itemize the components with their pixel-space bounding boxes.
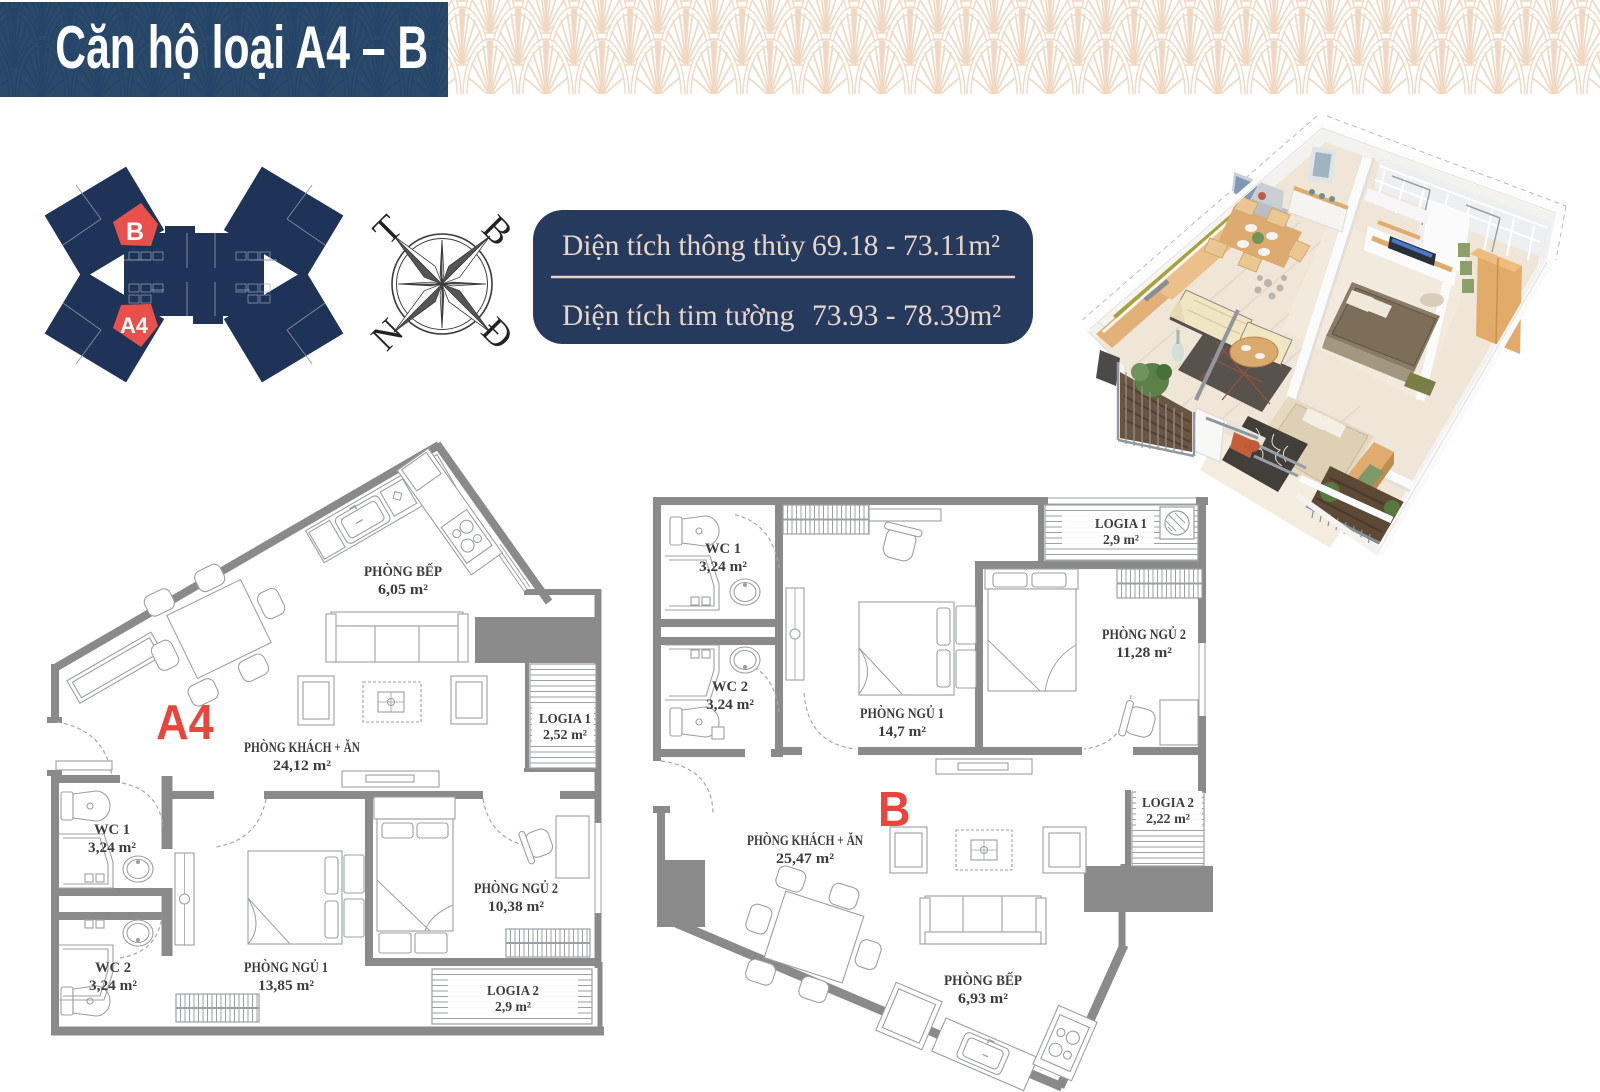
svg-text:PHÒNG NGỦ 2: PHÒNG NGỦ 2 (1102, 626, 1186, 643)
svg-text:3,24 m²: 3,24 m² (706, 697, 754, 713)
svg-text:Căn hộ loại A4 – B: Căn hộ loại A4 – B (55, 15, 428, 82)
svg-text:2,52 m²: 2,52 m² (543, 727, 587, 742)
svg-text:A4: A4 (156, 694, 214, 749)
svg-text:WC 2: WC 2 (712, 679, 748, 695)
svg-text:69.18 - 73.11m²: 69.18 - 73.11m² (812, 230, 1000, 262)
svg-text:PHÒNG NGỦ 1: PHÒNG NGỦ 1 (860, 705, 944, 722)
svg-text:2,22 m²: 2,22 m² (1146, 811, 1190, 826)
svg-text:10,38 m²: 10,38 m² (488, 899, 544, 915)
svg-text:2,9 m²: 2,9 m² (495, 999, 531, 1014)
svg-text:LOGIA 2: LOGIA 2 (487, 983, 539, 998)
svg-text:6,93 m²: 6,93 m² (958, 991, 1008, 1007)
svg-text:73.93 - 78.39m²: 73.93 - 78.39m² (812, 300, 1001, 332)
svg-text:LOGIA 1: LOGIA 1 (539, 711, 591, 726)
svg-text:3,24 m²: 3,24 m² (699, 559, 747, 575)
svg-text:PHÒNG NGỦ 1: PHÒNG NGỦ 1 (244, 959, 328, 976)
svg-text:13,85 m²: 13,85 m² (258, 978, 314, 994)
svg-text:Diện tích thông thủy: Diện tích thông thủy (562, 230, 806, 262)
svg-text:Diện tích tim tường: Diện tích tim tường (562, 300, 795, 332)
svg-text:PHÒNG BẾP: PHÒNG BẾP (944, 972, 1022, 989)
svg-text:24,12 m²: 24,12 m² (273, 758, 331, 774)
svg-text:3,24 m²: 3,24 m² (89, 978, 137, 994)
svg-text:PHÒNG KHÁCH + ĂN: PHÒNG KHÁCH + ĂN (747, 832, 863, 849)
svg-text:WC 1: WC 1 (705, 541, 741, 557)
svg-text:25,47 m²: 25,47 m² (776, 851, 834, 867)
svg-text:B: B (878, 781, 911, 836)
svg-text:LOGIA 1: LOGIA 1 (1095, 516, 1147, 531)
svg-text:3,24 m²: 3,24 m² (88, 840, 136, 856)
svg-text:PHÒNG NGỦ 2: PHÒNG NGỦ 2 (474, 880, 558, 897)
svg-text:11,28 m²: 11,28 m² (1116, 645, 1172, 661)
svg-text:B: B (126, 218, 144, 246)
svg-text:PHÒNG KHÁCH + ĂN: PHÒNG KHÁCH + ĂN (244, 739, 360, 756)
svg-text:14,7 m²: 14,7 m² (878, 724, 926, 740)
svg-text:2,9 m²: 2,9 m² (1103, 532, 1139, 547)
svg-text:WC 1: WC 1 (94, 822, 130, 838)
svg-text:A4: A4 (120, 313, 149, 338)
svg-text:WC 2: WC 2 (95, 960, 131, 976)
svg-text:LOGIA 2: LOGIA 2 (1142, 795, 1194, 810)
svg-text:PHÒNG BẾP: PHÒNG BẾP (364, 563, 442, 580)
svg-text:6,05 m²: 6,05 m² (378, 582, 428, 598)
